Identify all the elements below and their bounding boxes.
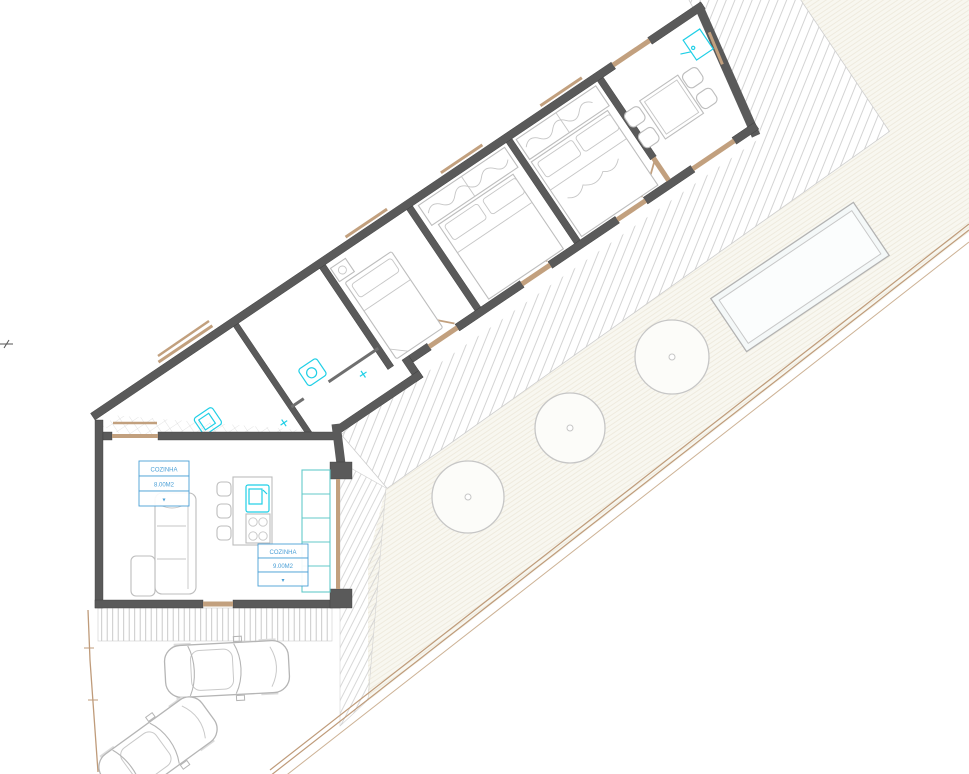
room-label-area: 8.00M2	[154, 483, 175, 489]
ottoman	[131, 556, 155, 596]
floor-plan-page: COZINHA 8.00M2 ▾ COZINHA 9.00M2 ▾	[0, 0, 969, 774]
corner-wall	[336, 424, 341, 464]
stool	[217, 504, 231, 518]
tree	[432, 461, 504, 533]
south-wall-living	[95, 600, 203, 608]
south-wall-living	[233, 600, 340, 608]
stool	[217, 482, 231, 496]
stool	[217, 526, 231, 540]
room-label-area: 9.00M2	[273, 564, 294, 570]
hall-wall	[158, 432, 337, 440]
dimension-tick	[0, 340, 13, 348]
car-top	[163, 634, 290, 704]
window-pier	[330, 462, 352, 479]
room-label-symbol: ▾	[162, 498, 165, 504]
sliding-door-frame	[336, 479, 340, 589]
room-label-name: COZINHA	[270, 550, 297, 556]
boundary-left	[88, 610, 98, 772]
tree	[635, 320, 709, 394]
west-wall	[95, 420, 103, 608]
floor-plan-canvas: COZINHA 8.00M2 ▾ COZINHA 9.00M2 ▾	[0, 0, 969, 774]
window-pier	[330, 589, 352, 608]
entry-threshold	[112, 434, 158, 438]
room-label-1: COZINHA 8.00M2 ▾	[139, 461, 189, 506]
room-label-symbol: ▾	[281, 578, 284, 584]
front-walkway	[98, 608, 332, 641]
tree	[535, 393, 605, 463]
window-sill	[203, 602, 233, 607]
kitchen-island	[217, 477, 272, 545]
room-label-2: COZINHA 9.00M2 ▾	[258, 544, 308, 586]
room-label-name: COZINHA	[151, 468, 178, 474]
car-bottom	[89, 686, 227, 774]
living-block: COZINHA 8.00M2 ▾ COZINHA 9.00M2 ▾	[95, 420, 352, 608]
hall-wall	[103, 432, 112, 440]
